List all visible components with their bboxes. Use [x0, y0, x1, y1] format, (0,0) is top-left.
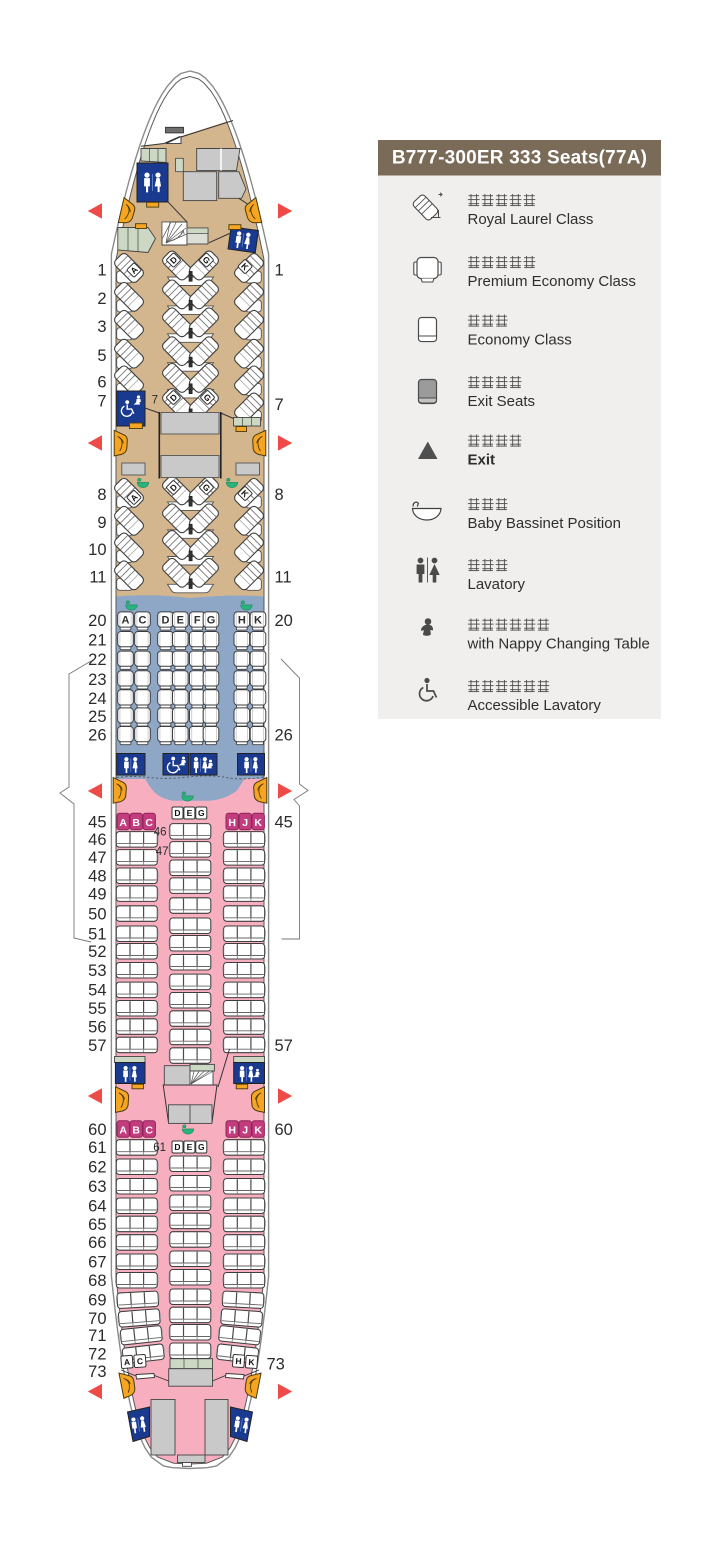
svg-text:8: 8	[97, 486, 106, 504]
svg-text:64: 64	[88, 1198, 106, 1216]
svg-text:1: 1	[275, 261, 284, 279]
svg-text:60: 60	[275, 1121, 293, 1139]
svg-text:D: D	[174, 1142, 180, 1152]
svg-text:57: 57	[88, 1037, 106, 1055]
svg-text:G: G	[198, 1142, 205, 1152]
svg-text:8: 8	[275, 486, 284, 504]
svg-text:B777-300ER 333 Seats(77A): B777-300ER 333 Seats(77A)	[392, 148, 647, 169]
svg-text:62: 62	[88, 1159, 106, 1177]
svg-text:22: 22	[88, 651, 106, 669]
svg-text:G: G	[207, 615, 216, 627]
svg-text:26: 26	[275, 727, 293, 745]
svg-text:23: 23	[88, 671, 106, 689]
svg-text:C: C	[139, 615, 147, 627]
svg-text:7: 7	[97, 393, 106, 411]
svg-text:57: 57	[275, 1037, 293, 1055]
svg-text:63: 63	[88, 1178, 106, 1196]
svg-text:3: 3	[97, 318, 106, 336]
svg-text:E: E	[187, 808, 193, 818]
svg-text:61: 61	[153, 1142, 166, 1154]
svg-text:7: 7	[275, 396, 284, 414]
svg-text:69: 69	[88, 1292, 106, 1310]
svg-text:C: C	[145, 1124, 153, 1136]
svg-text:25: 25	[88, 708, 106, 726]
svg-text:2: 2	[97, 290, 106, 308]
svg-text:K: K	[254, 817, 262, 829]
svg-text:10: 10	[88, 541, 106, 559]
svg-text:50: 50	[88, 905, 106, 923]
svg-text:56: 56	[88, 1018, 106, 1036]
svg-text:K: K	[254, 615, 262, 627]
svg-text:H: H	[235, 1356, 242, 1366]
svg-text:45: 45	[88, 813, 106, 831]
svg-text:A: A	[124, 1357, 131, 1367]
svg-text:71: 71	[88, 1327, 106, 1345]
svg-text:H: H	[228, 817, 236, 829]
svg-text:20: 20	[88, 612, 106, 630]
svg-text:70: 70	[88, 1310, 106, 1328]
svg-text:47: 47	[88, 849, 106, 867]
svg-text:24: 24	[88, 690, 106, 708]
svg-text:A: A	[119, 817, 127, 829]
svg-text:46: 46	[88, 831, 106, 849]
svg-text:11: 11	[89, 569, 106, 587]
svg-text:5: 5	[97, 347, 106, 365]
svg-text:with Nappy Changing Table: with Nappy Changing Table	[467, 636, 650, 653]
svg-text:B: B	[132, 817, 140, 829]
svg-text:C: C	[137, 1356, 144, 1366]
svg-text:21: 21	[88, 632, 106, 650]
svg-text:45: 45	[275, 813, 293, 831]
svg-text:26: 26	[88, 727, 106, 745]
svg-text:73: 73	[88, 1363, 106, 1381]
svg-text:E: E	[187, 1142, 193, 1152]
svg-text:7: 7	[152, 395, 158, 407]
svg-text:D: D	[162, 615, 170, 627]
svg-text:Premium Economy Class: Premium Economy Class	[468, 273, 636, 290]
svg-text:B: B	[132, 1124, 140, 1136]
svg-text:Baby Bassinet Position: Baby Bassinet Position	[468, 515, 621, 532]
svg-text:A: A	[122, 615, 130, 627]
svg-text:H: H	[238, 615, 246, 627]
svg-text:49: 49	[88, 885, 106, 903]
svg-text:J: J	[242, 817, 248, 829]
svg-text:48: 48	[88, 868, 106, 886]
svg-text:A: A	[119, 1124, 127, 1136]
svg-text:1: 1	[97, 261, 106, 279]
svg-text:G: G	[198, 808, 205, 818]
svg-text:20: 20	[275, 612, 293, 630]
svg-text:Economy Class: Economy Class	[468, 332, 572, 349]
svg-text:52: 52	[88, 943, 106, 961]
svg-text:72: 72	[88, 1346, 106, 1364]
svg-text:9: 9	[97, 514, 106, 532]
svg-text:E: E	[177, 615, 184, 627]
svg-text:65: 65	[88, 1216, 106, 1234]
svg-text:D: D	[174, 808, 180, 818]
svg-text:6: 6	[97, 374, 106, 392]
svg-text:Accessible Lavatory: Accessible Lavatory	[468, 697, 602, 714]
svg-text:Exit: Exit	[468, 452, 496, 469]
svg-text:Exit Seats: Exit Seats	[468, 393, 536, 410]
svg-text:67: 67	[88, 1254, 106, 1272]
svg-text:Lavatory: Lavatory	[468, 576, 526, 593]
svg-text:F: F	[194, 615, 201, 627]
svg-text:J: J	[242, 1124, 248, 1136]
svg-text:11: 11	[275, 569, 292, 587]
svg-text:53: 53	[88, 962, 106, 980]
svg-text:H: H	[228, 1124, 236, 1136]
svg-text:47: 47	[156, 846, 169, 858]
svg-text:46: 46	[154, 827, 167, 839]
svg-text:K: K	[254, 1124, 262, 1136]
svg-text:55: 55	[88, 1000, 106, 1018]
svg-text:51: 51	[88, 926, 106, 944]
svg-text:61: 61	[88, 1139, 106, 1157]
svg-text:60: 60	[88, 1121, 106, 1139]
svg-text:73: 73	[267, 1356, 285, 1374]
svg-text:66: 66	[88, 1234, 106, 1252]
svg-text:68: 68	[88, 1272, 106, 1290]
svg-text:C: C	[145, 817, 153, 829]
svg-text:Royal Laurel Class: Royal Laurel Class	[468, 211, 594, 228]
svg-text:54: 54	[88, 982, 106, 1000]
